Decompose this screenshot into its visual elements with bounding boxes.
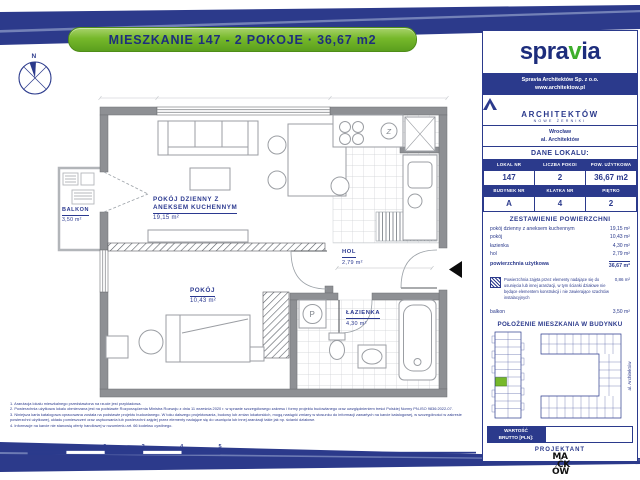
scale-tick: 1	[65, 444, 68, 450]
company-website: www.architektow.pl	[483, 84, 637, 92]
value-liczba-pokoi: 2	[535, 170, 586, 185]
table-row: BUDYNEK NR KLATKA NR PIĘTRO	[484, 185, 637, 196]
bed	[166, 315, 250, 362]
room-label-balcony: BALKON 3,50 m²	[62, 207, 89, 224]
area-row: łazienka 4,30 m²	[483, 242, 637, 250]
nightstand	[250, 347, 264, 361]
highlighted-unit	[496, 378, 507, 387]
apartment-header-text: MIESZKANIE 147 - 2 POKOJE · 36,67 m2	[109, 33, 377, 47]
value-pow-uzytkowa: 36,67 m2	[586, 170, 637, 185]
scale-tick: 3	[142, 444, 145, 450]
location-title: POŁOŻENIE MIESZKANIA W BUDYNKU	[483, 317, 637, 330]
architektow-triangle-icon	[483, 98, 497, 110]
room-label-bathroom: ŁAZIENKA 4,30 m²	[346, 310, 380, 328]
wardrobe	[263, 292, 289, 358]
value-klatka-nr: 4	[535, 196, 586, 211]
building-location-map: al. Architektów	[483, 330, 637, 422]
hatch-legend-icon	[490, 277, 501, 288]
dimension-line-top	[99, 96, 449, 100]
bedroom-door	[291, 251, 327, 289]
room-label-bedroom: POKÓJ 10,43 m²	[190, 287, 216, 306]
company-box: Spravia Architektów Sp. z o.o. www.archi…	[483, 73, 637, 95]
area-row: hol 2,79 m²	[483, 250, 637, 258]
sofa	[158, 121, 258, 155]
living-room-furniture	[148, 121, 349, 242]
chair	[331, 177, 349, 195]
unit-data-title: DANE LOKALU:	[483, 147, 637, 159]
designer-logo: MA ĆK ÓW	[483, 454, 637, 476]
washing-machine-letter: P	[310, 310, 315, 319]
tv-sideboard	[148, 230, 248, 242]
bedroom-furniture	[106, 315, 264, 362]
chair	[268, 136, 286, 154]
removable-partition-wall	[108, 243, 325, 251]
scale-tick: 5	[218, 444, 221, 450]
header-lokal-nr: LOKAL NR	[484, 159, 535, 170]
spravia-logo: spravia	[483, 31, 637, 73]
entrance-arrow-icon	[449, 261, 462, 278]
kitchen-counter	[333, 115, 403, 147]
usable-area-total: powierzchnia użytkowa 36,67 m²	[483, 258, 637, 271]
room-label-living: POKÓJ DZIENNY Z ANEKSEM KUCHENNYM 19,15 …	[153, 196, 237, 223]
table-row: 147 2 36,67 m2	[484, 170, 637, 185]
dishwasher-letter: Z	[386, 127, 392, 136]
side-table	[106, 336, 128, 358]
development-tagline: NOWE ŻERNIKI	[483, 119, 637, 123]
apartment-header-badge: MIESZKANIE 147 - 2 POKOJE · 36,67 m2	[68, 27, 417, 52]
price-label: WARTOŚĆ BRUTTO [PLN]:	[487, 426, 545, 443]
development-address-box: Wrocław al. Architektów	[483, 126, 637, 147]
removable-elements-note: Powierzchnia zajęta przez elementy nadaj…	[483, 271, 637, 302]
area-row: pokój dzienny z aneksem kuchennym 19,15 …	[483, 225, 637, 233]
room-label-hall: HOL 2,79 m²	[342, 249, 363, 267]
value-pietro: 2	[586, 196, 637, 211]
toilet	[330, 341, 345, 360]
header-pietro: PIĘTRO	[586, 185, 637, 196]
header-klatka-nr: KLATKA NR	[535, 185, 586, 196]
header-pow-uzytkowa: POW. UŻYTKOWA	[586, 159, 637, 170]
footnote-line: 3. Niniejsza karta katalogowa opracowana…	[10, 412, 468, 423]
development-logo-box: ARCHITEKTÓW NOWE ŻERNIKI	[483, 95, 637, 126]
balcony-door-swing	[104, 172, 148, 212]
price-row: WARTOŚĆ BRUTTO [PLN]:	[487, 426, 633, 443]
coffee-table	[190, 168, 230, 190]
scale-tick: 2	[103, 444, 106, 450]
armchair	[139, 330, 163, 354]
balcony-area-row: balkon 3,50 m²	[483, 302, 637, 317]
chair	[268, 171, 286, 189]
compass-icon: N	[19, 53, 51, 94]
value-budynek-nr: A	[484, 196, 535, 211]
compass-north-label: N	[32, 53, 37, 60]
area-row: pokój 10,43 m²	[483, 233, 637, 241]
development-name: ARCHITEKTÓW	[483, 110, 637, 119]
building-plan-drawing: al. Architektów	[483, 330, 637, 422]
footnote-line: 4. Informacje na karcie nie stanowią ofe…	[10, 423, 468, 428]
toilet-tank	[329, 333, 345, 340]
price-value-field	[545, 426, 633, 443]
header-liczba-pokoi: LICZBA POKOI	[535, 159, 586, 170]
value-lokal-nr: 147	[484, 170, 535, 185]
company-name: Spravia Architektów Sp. z o.o.	[483, 76, 637, 84]
map-street-label: al. Architektów	[627, 361, 632, 391]
scale-tick: 0	[26, 444, 29, 450]
areas-title: ZESTAWIENIE POWIERZCHNI	[483, 212, 637, 225]
development-street: al. Architektów	[483, 136, 637, 144]
unit-data-table: LOKAL NR LICZBA POKOI POW. UŻYTKOWA 147 …	[483, 159, 637, 212]
info-sidebar: spravia Spravia Architektów Sp. z o.o. w…	[482, 30, 638, 462]
table-row: A 4 2	[484, 196, 637, 211]
table-row: LOKAL NR LICZBA POKOI POW. UŻYTKOWA	[484, 159, 637, 170]
footnotes: 1. Aranżacja lokalu mieszkalnego przedst…	[10, 401, 468, 428]
development-city: Wrocław	[483, 128, 637, 136]
floorplan-card: N	[0, 0, 640, 480]
header-budynek-nr: BUDYNEK NR	[484, 185, 535, 196]
bathtub	[399, 300, 436, 380]
